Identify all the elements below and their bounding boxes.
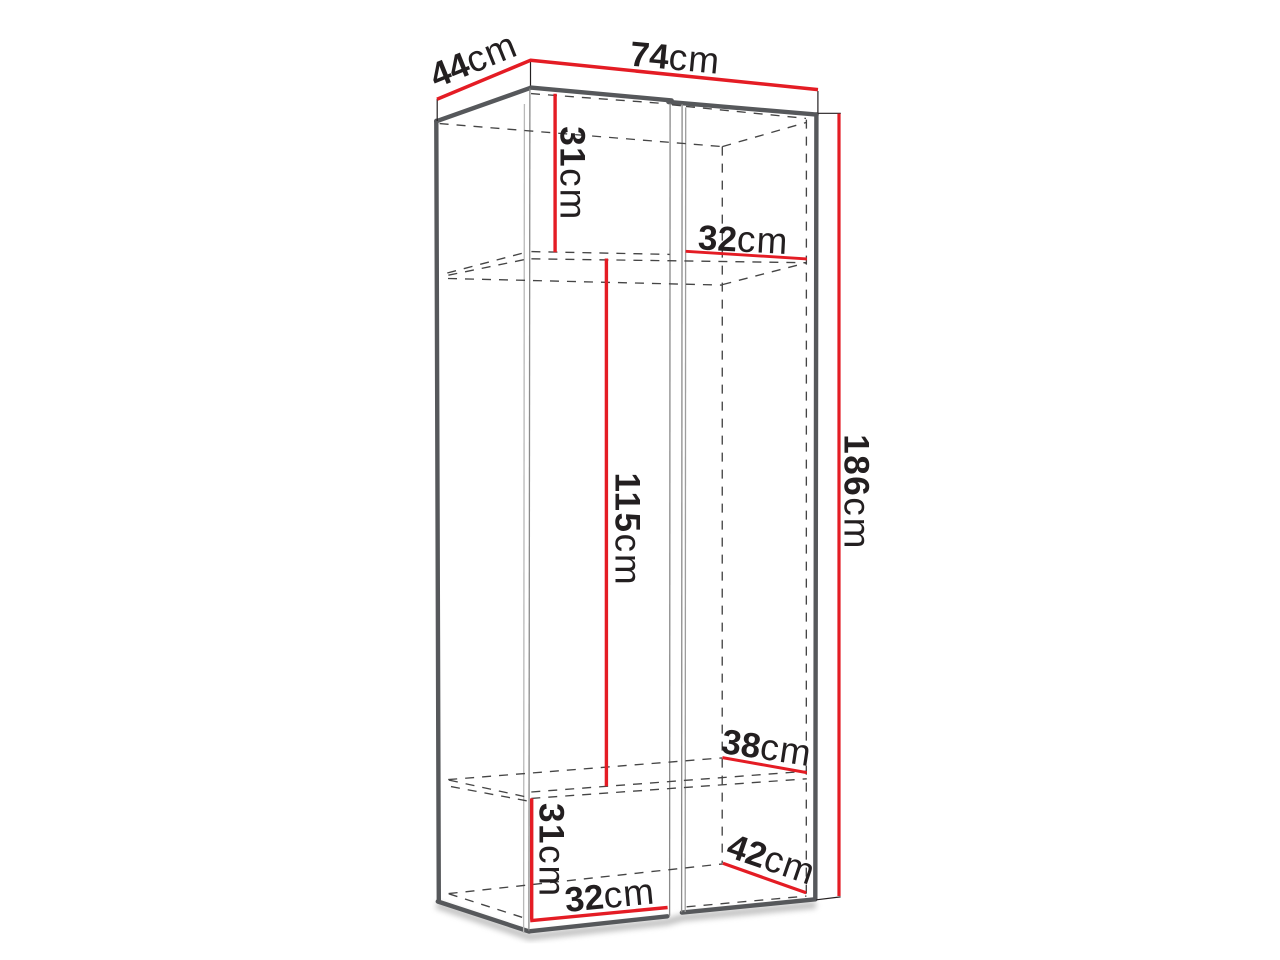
svg-text:31cm: 31cm [552, 126, 593, 221]
svg-text:186cm: 186cm [836, 434, 877, 550]
svg-text:32cm: 32cm [697, 216, 789, 262]
svg-text:38cm: 38cm [719, 720, 815, 774]
svg-text:115cm: 115cm [608, 473, 649, 587]
svg-text:32cm: 32cm [563, 870, 657, 919]
svg-text:74cm: 74cm [628, 33, 722, 82]
